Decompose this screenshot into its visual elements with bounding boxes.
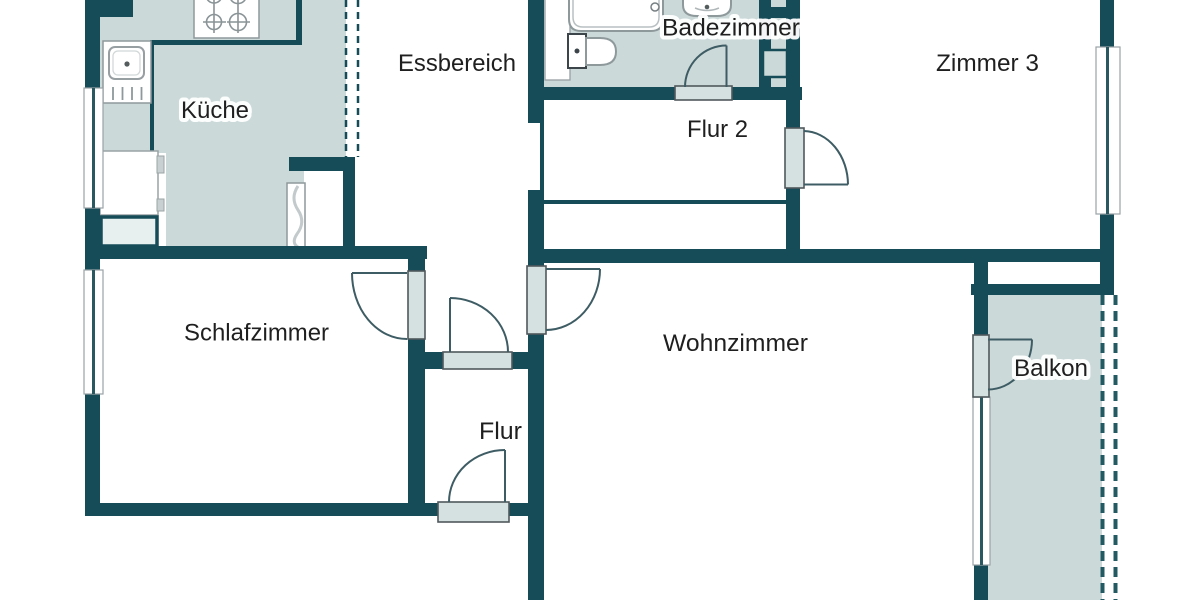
svg-text:Wohnzimmer: Wohnzimmer <box>663 330 808 357</box>
svg-text:Essbereich: Essbereich <box>398 50 516 77</box>
svg-text:Zimmer 3: Zimmer 3 <box>936 50 1039 77</box>
svg-text:Küche: Küche <box>181 97 249 124</box>
svg-text:Flur: Flur <box>479 418 522 445</box>
svg-text:Balkon: Balkon <box>1014 355 1088 382</box>
svg-text:Flur 2: Flur 2 <box>687 116 748 143</box>
svg-text:Badezimmer: Badezimmer <box>662 15 800 42</box>
svg-text:Schlafzimmer: Schlafzimmer <box>184 320 329 347</box>
